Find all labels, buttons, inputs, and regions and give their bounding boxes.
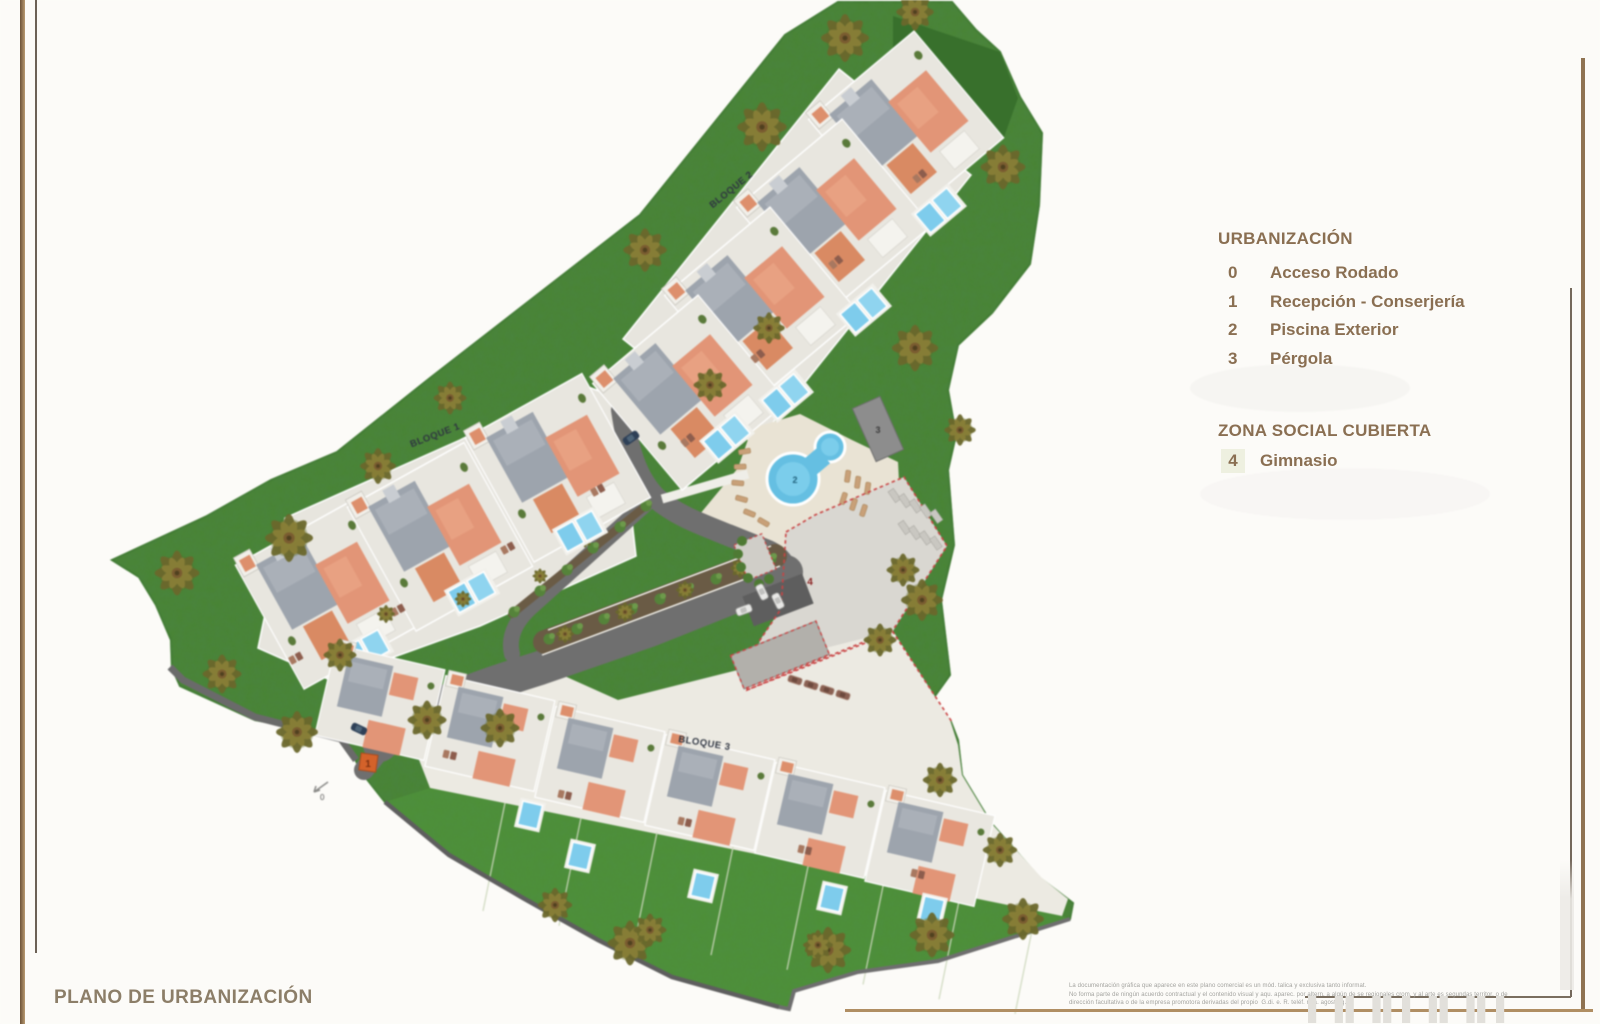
svg-text:2: 2 (792, 475, 797, 485)
svg-text:0: 0 (320, 793, 325, 802)
svg-text:4: 4 (807, 577, 813, 588)
svg-text:3: 3 (875, 425, 880, 435)
svg-text:1: 1 (365, 759, 371, 770)
